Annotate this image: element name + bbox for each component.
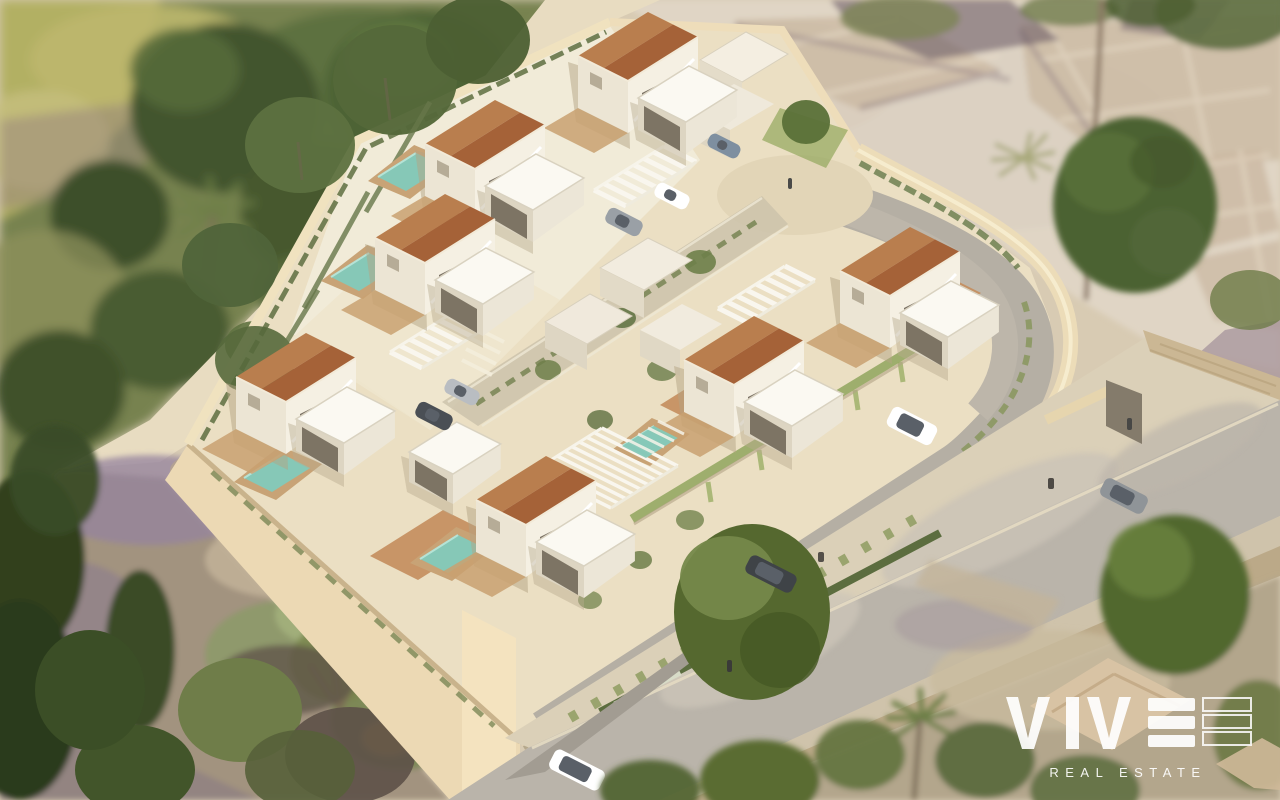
svg-text:REAL ESTATE: REAL ESTATE xyxy=(1049,765,1206,780)
